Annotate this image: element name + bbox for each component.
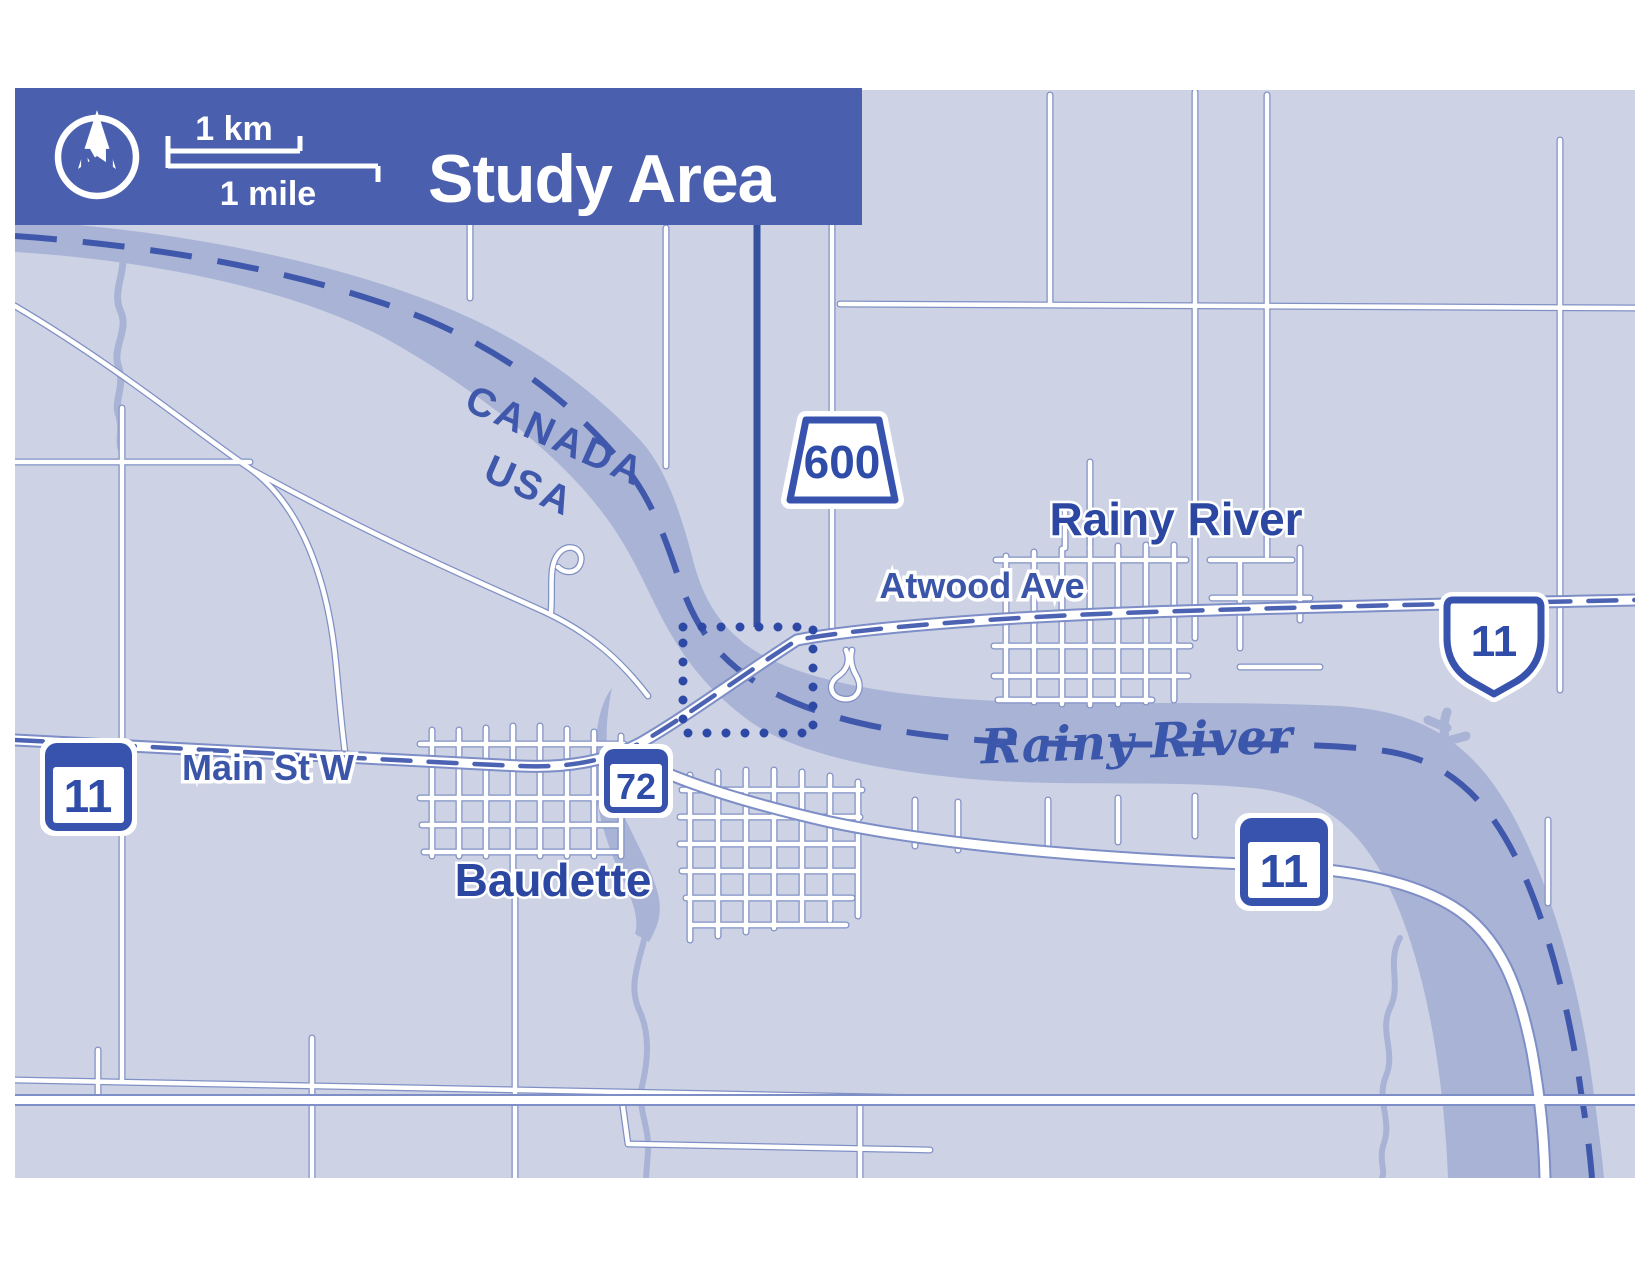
shield-on-600-number: 600: [804, 436, 881, 488]
shield-mn-11-south: 11: [1235, 813, 1333, 911]
rainy-river-town-label: Rainy River: [1049, 493, 1302, 545]
title-banner: N 1 km 1 mile Study Area: [15, 88, 862, 225]
map-canvas: CANADA USA 600 11 11 72: [15, 90, 1635, 1178]
baudette-town-label: Baudette: [455, 854, 652, 906]
atwood-ave-label: Atwood Ave: [879, 565, 1084, 606]
study-area-map-page: CANADA USA 600 11 11 72: [0, 0, 1650, 1275]
scale-km-label: 1 km: [195, 110, 273, 148]
shield-on-11-crest: 11: [1447, 600, 1541, 694]
shield-mn-11-south-number: 11: [1260, 845, 1309, 897]
map-figure: CANADA USA 600 11 11 72: [0, 0, 1650, 1275]
main-st-w-label: Main St W: [182, 747, 354, 788]
shield-mn-11-west-number: 11: [64, 770, 113, 822]
shield-on-11-number: 11: [1471, 617, 1518, 666]
shield-mn-72: 72: [599, 744, 673, 818]
scale-mile-label: 1 mile: [220, 175, 316, 213]
shield-on-600: 600: [790, 420, 895, 500]
map-title: Study Area: [428, 141, 777, 217]
rainy-river-water-label: Rainy River: [978, 708, 1297, 775]
shield-mn-72-number: 72: [616, 766, 656, 807]
shield-mn-11-west: 11: [40, 738, 137, 836]
north-letter: N: [78, 138, 117, 198]
